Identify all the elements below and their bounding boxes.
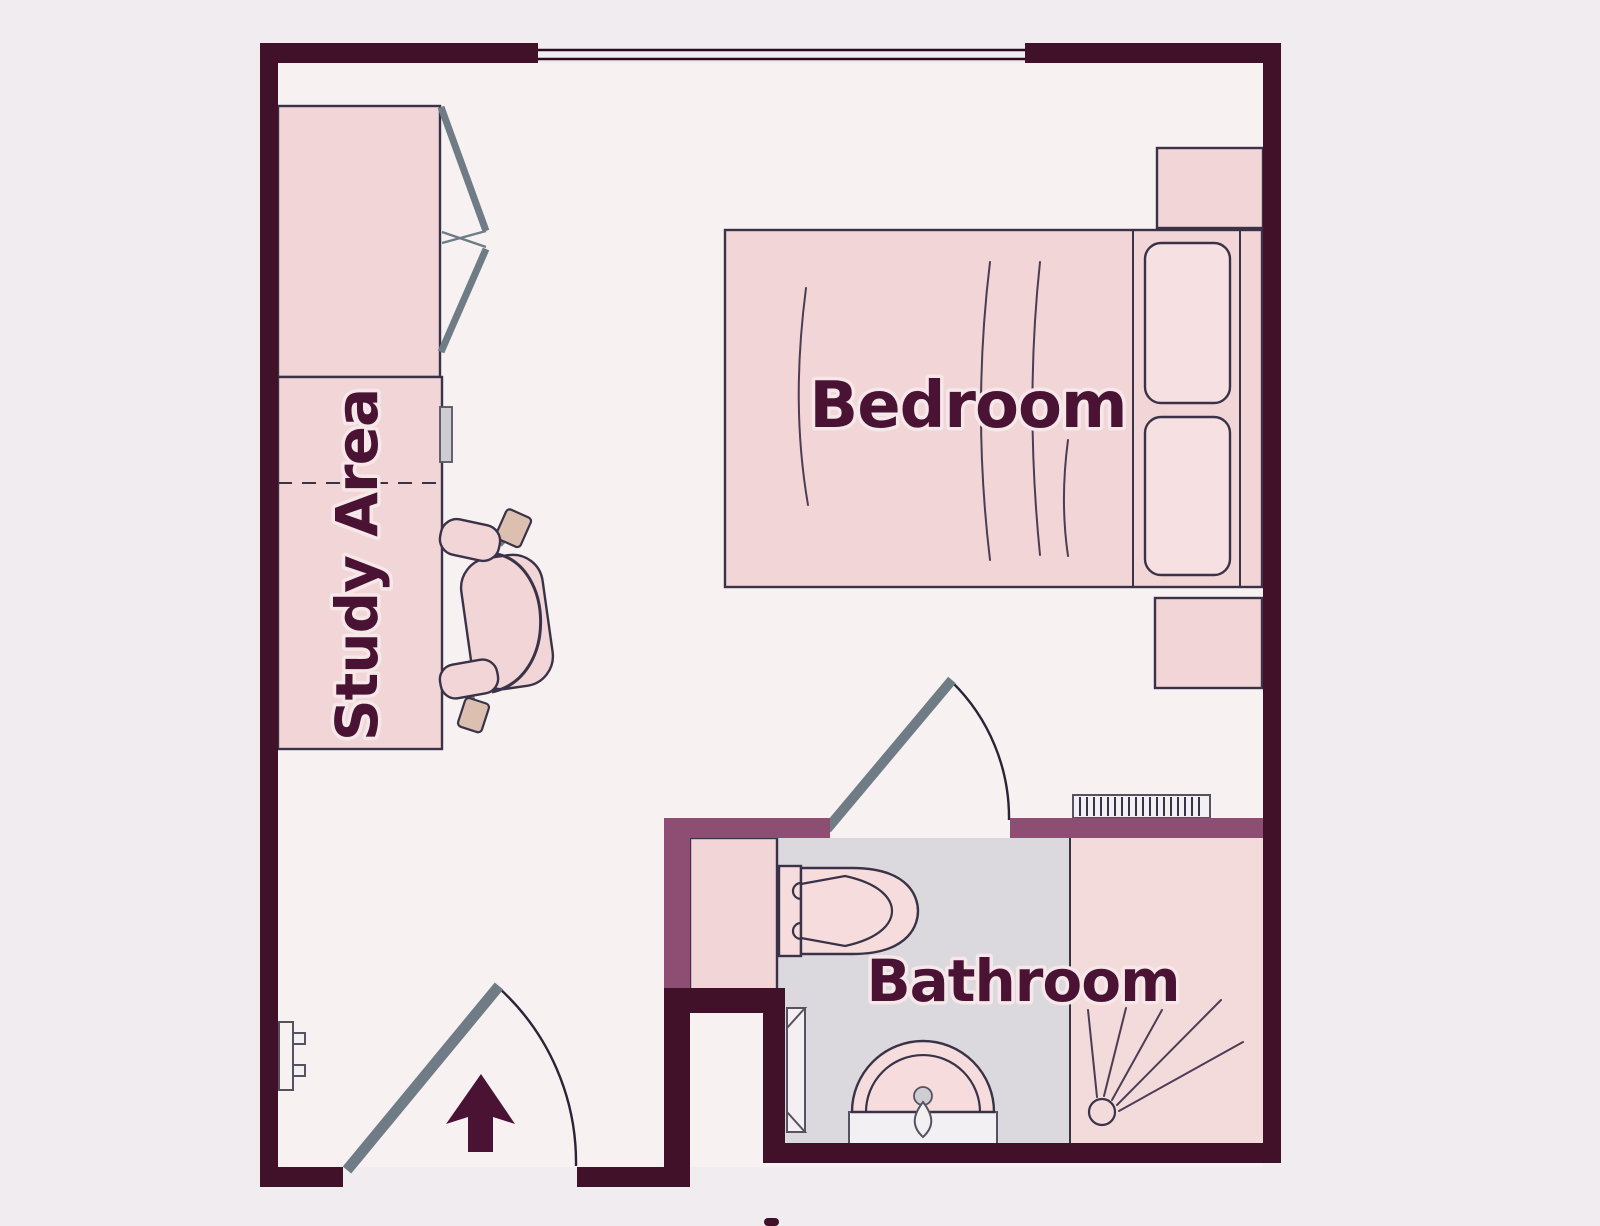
- bathroom-wall-top-right: [1010, 818, 1281, 838]
- wall-bottom-left-segment: [260, 1167, 343, 1187]
- wall-panel-tab: [293, 1065, 305, 1076]
- bedroom-label: Bedroom: [809, 369, 1126, 443]
- wall-top-left-segment: [260, 43, 538, 63]
- wall-panel-tab: [293, 1033, 305, 1044]
- wall-top-right-segment: [1025, 43, 1281, 63]
- pillow: [1145, 417, 1230, 575]
- nightstand: [1155, 598, 1262, 688]
- bathroom-wall-left: [664, 818, 690, 995]
- floor-plan-drawing: Bedroom Bathroom Study Area: [0, 0, 1600, 1226]
- towel-rail-body: [787, 1008, 805, 1132]
- bathroom-label: Bathroom: [866, 947, 1179, 1015]
- bathroom-wall-bottom: [763, 1143, 1281, 1163]
- nightstand: [1157, 148, 1263, 228]
- radiator: [1073, 795, 1210, 818]
- desk-handle: [440, 407, 452, 462]
- towel-rail: [787, 1008, 805, 1132]
- toilet-cistern: [779, 866, 801, 956]
- storage-cabinet: [690, 838, 777, 990]
- window: [538, 50, 1025, 59]
- wardrobe: [278, 106, 440, 377]
- hall-divider-wall: [664, 988, 690, 1187]
- bottom-crop-mark: [764, 1218, 779, 1226]
- floor-plan: Bedroom Bathroom Study Area: [0, 0, 1600, 1226]
- bathroom-wall-lower-left: [763, 1013, 785, 1163]
- pillow: [1145, 243, 1230, 403]
- study-area-label: Study Area: [323, 389, 391, 741]
- wall-left: [260, 43, 278, 1187]
- toilet: [779, 866, 918, 956]
- wall-right: [1263, 43, 1281, 1163]
- bathroom-connector-wall: [664, 988, 785, 1013]
